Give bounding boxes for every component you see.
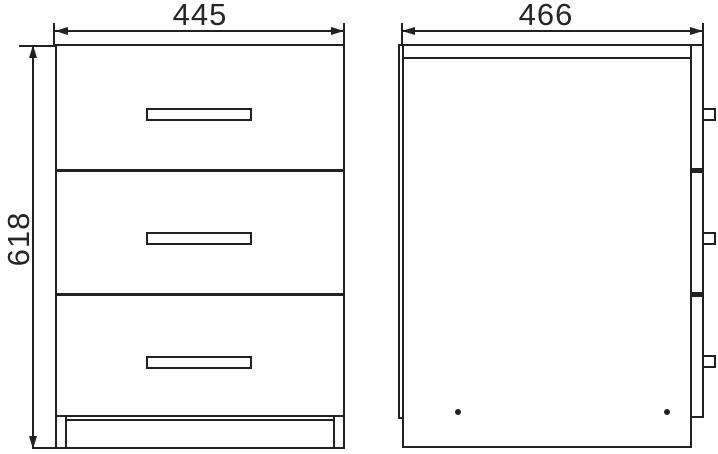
width-dimension-label: 445 — [150, 0, 250, 30]
side-screw-hole-right — [664, 409, 670, 415]
side-handle-tab-1 — [702, 108, 716, 121]
width-dimension-arrow-right — [331, 27, 344, 35]
depth-dimension-arrow-left — [402, 27, 415, 35]
side-handle-tab-3 — [702, 355, 716, 368]
depth-dimension-arrow-right — [690, 27, 703, 35]
height-dimension-label: 618 — [4, 199, 34, 279]
front-drawer-handle-1 — [146, 108, 252, 121]
side-drawer-divider-2 — [691, 292, 703, 297]
side-screw-hole-left — [455, 409, 461, 415]
side-top-panel-underside-line — [403, 57, 691, 59]
side-handle-tab-2 — [702, 232, 716, 245]
front-floor-line — [32, 447, 345, 449]
side-top-edge — [398, 44, 703, 46]
side-panel-left-edge-lower — [402, 417, 404, 448]
front-plinth-right-foot — [333, 415, 345, 449]
front-drawer-handle-3 — [146, 356, 252, 369]
side-drawer-divider-1 — [691, 168, 703, 173]
side-back-panel-strip — [398, 44, 404, 419]
width-dimension-arrow-left — [55, 27, 68, 35]
side-bottom-edge — [402, 446, 692, 448]
height-dimension-arrow-top — [29, 45, 37, 58]
front-drawer-handle-2 — [146, 232, 252, 245]
technical-drawing-canvas: 445 618 466 — [0, 0, 718, 454]
height-dimension-arrow-bottom — [29, 436, 37, 449]
depth-dimension-label: 466 — [496, 0, 596, 30]
front-plinth-panel-top-edge — [66, 419, 334, 421]
front-drawer-divider-2 — [56, 293, 344, 296]
front-drawer-divider-1 — [56, 169, 344, 172]
height-extension-line-top — [19, 45, 56, 47]
